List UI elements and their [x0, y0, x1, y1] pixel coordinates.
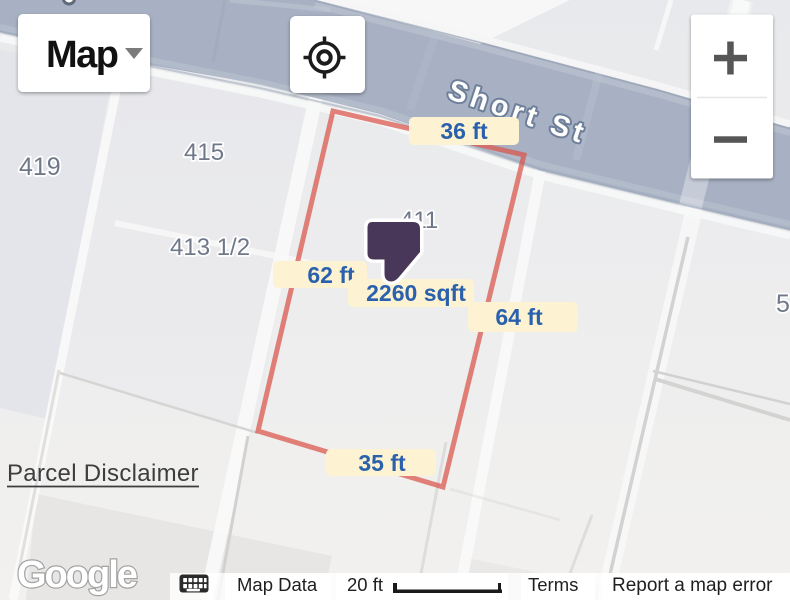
svg-text:36 ft: 36 ft [440, 118, 488, 144]
svg-text:413 1/2: 413 1/2 [170, 234, 250, 261]
svg-text:Terms: Terms [528, 574, 578, 595]
svg-text:5: 5 [776, 290, 790, 318]
svg-text:62 ft: 62 ft [307, 262, 355, 288]
svg-text:Map Data: Map Data [237, 574, 318, 595]
svg-text:419: 419 [19, 153, 61, 181]
svg-text:Map: Map [46, 34, 118, 76]
svg-text:2260 sqft: 2260 sqft [366, 280, 466, 306]
svg-text:Parcel Disclaimer: Parcel Disclaimer [7, 460, 199, 487]
svg-text:64 ft: 64 ft [495, 304, 543, 330]
svg-text:35 ft: 35 ft [358, 450, 406, 476]
svg-text:Google: Google [17, 554, 137, 596]
svg-text:20 ft: 20 ft [347, 574, 383, 595]
svg-text:415: 415 [184, 139, 224, 166]
svg-text:Report a map error: Report a map error [612, 575, 773, 596]
